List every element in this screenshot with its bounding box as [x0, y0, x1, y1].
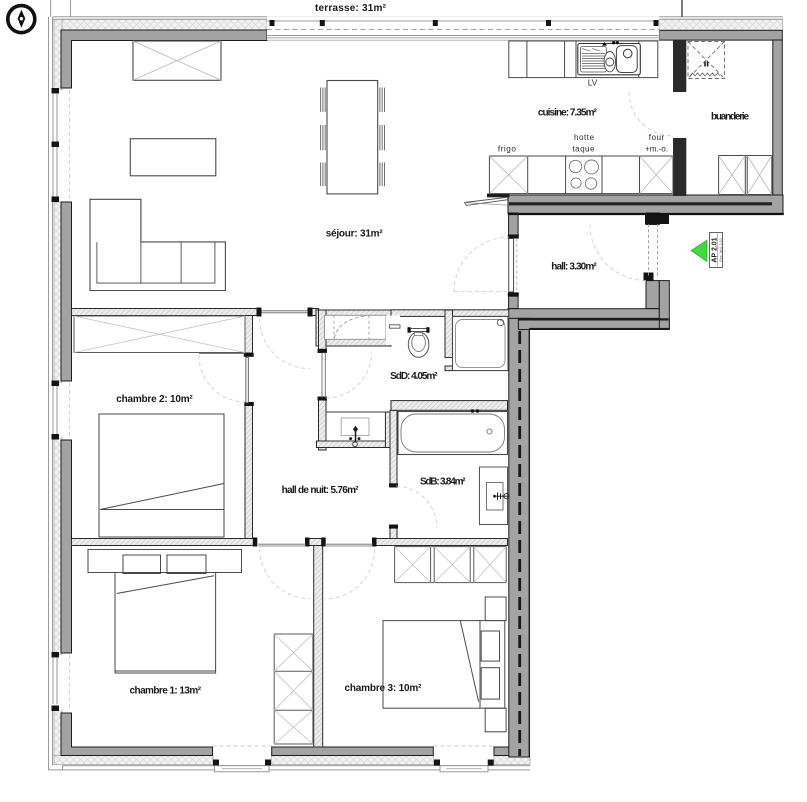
svg-text:SdB: 3.84m²: SdB: 3.84m²: [420, 476, 466, 487]
svg-text:hall de nuit: 5.76m²: hall de nuit: 5.76m²: [282, 485, 360, 496]
svg-text:hotte: hotte: [574, 133, 594, 142]
svg-text:cuisine: 7.35m²: cuisine: 7.35m²: [538, 108, 598, 119]
svg-text:Rez. jard. 3.10: Rez. jard. 3.10: [719, 238, 723, 261]
svg-text:chambre 2: 10m²: chambre 2: 10m²: [116, 394, 193, 405]
svg-text:buanderie: buanderie: [711, 112, 749, 123]
svg-text:hall: 3.30m²: hall: 3.30m²: [551, 262, 597, 273]
svg-text:four: four: [649, 133, 665, 142]
svg-text:frigo: frigo: [498, 145, 516, 154]
svg-text:AP 2.01: AP 2.01: [712, 237, 719, 262]
svg-text:SdD: 4.05m²: SdD: 4.05m²: [390, 371, 438, 382]
svg-text:LV: LV: [588, 79, 598, 88]
svg-text:+m.-o.: +m.-o.: [645, 145, 668, 154]
svg-text:séjour: 31m²: séjour: 31m²: [326, 228, 384, 239]
svg-text:chambre 3: 10m²: chambre 3: 10m²: [345, 683, 423, 694]
svg-text:chambre 1: 13m²: chambre 1: 13m²: [130, 686, 202, 697]
svg-text:taque: taque: [573, 145, 595, 154]
svg-text:terrasse: 31m²: terrasse: 31m²: [315, 3, 387, 14]
